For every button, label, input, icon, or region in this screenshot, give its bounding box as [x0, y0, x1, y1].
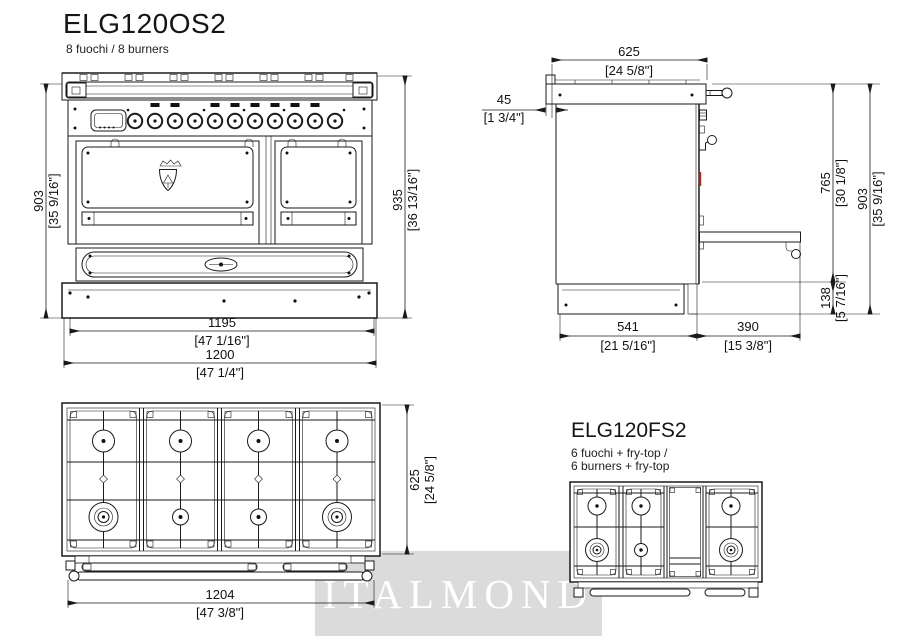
side-towel-rail [700, 232, 801, 259]
dim-width-body-inch: [47 1/16"] [194, 333, 249, 348]
dim-depth-front-mm: 390 [737, 319, 759, 334]
front-view-drawing: 903 [35 9/16"] 935 [36 13/16"] 1195 [47 … [31, 73, 420, 380]
dim-plinth-height-mm: 138 [818, 287, 833, 309]
oven-display [91, 110, 126, 131]
variant-front-trim [574, 582, 758, 597]
page-subtitle: 8 fuochi / 8 burners [66, 42, 169, 56]
dim-back-offset-mm: 45 [497, 92, 511, 107]
side-knob [706, 88, 732, 98]
dim-height-to-plinth-mm: 765 [818, 172, 833, 194]
dim-depth-top-mm: 625 [618, 44, 640, 59]
variant-title: ELG120FS2 [571, 419, 687, 443]
dim-width-body-mm: 1195 [208, 315, 236, 330]
top-view-front-trim [66, 556, 374, 581]
dim-width-total-inch: [47 1/4"] [196, 365, 244, 380]
top-view-drawing: 625 [24 5/8"] 1204 [47 3/8"] [62, 403, 437, 620]
variant-top-view-drawing [570, 482, 762, 597]
page-title: ELG120OS2 [63, 8, 226, 40]
dim-top-depth-mm: 625 [407, 469, 422, 491]
side-door-handle [700, 136, 717, 151]
storage-drawer [76, 248, 363, 281]
dim-top-depth-inch: [24 5/8"] [422, 456, 437, 504]
dim-depth-body-inch: [21 5/16"] [600, 338, 655, 353]
dim-top-width-mm: 1204 [206, 587, 235, 602]
dim-height-deck-mm: 903 [31, 190, 46, 212]
dim-plinth-height-inch: [5 7/16"] [833, 274, 848, 322]
dim-side-height-total-inch: [35 9/16"] [870, 171, 885, 226]
dim-height-deck-inch: [35 9/16"] [46, 173, 61, 228]
dim-depth-front-inch: [15 3/8"] [724, 338, 772, 353]
variant-subtitle: 6 fuochi + fry-top / 6 burners + fry-top [571, 447, 669, 473]
dim-height-total-inch: [36 13/16"] [405, 169, 420, 231]
control-knobs [127, 103, 346, 128]
technical-drawing-page: ELG120OS2 8 fuochi / 8 burners ELG120FS2… [0, 0, 917, 636]
dim-back-offset-inch: [1 3/4"] [484, 110, 525, 125]
side-view-drawing: 625 [24 5/8"] 45 [1 3/4"] 765 [30 1/8"] … [482, 44, 885, 353]
dim-top-width-inch: [47 3/8"] [196, 605, 244, 620]
dim-depth-body-mm: 541 [617, 319, 639, 334]
variant-subtitle-line2: 6 burners + fry-top [571, 460, 669, 473]
dim-depth-top-inch: [24 5/8"] [605, 63, 653, 78]
drawing-canvas: 903 [35 9/16"] 935 [36 13/16"] 1195 [47 … [0, 0, 917, 636]
dim-height-to-plinth-inch: [30 1/8"] [833, 159, 848, 207]
fry-top-plate [670, 488, 701, 577]
dim-width-total-mm: 1200 [206, 347, 235, 362]
dim-height-total-mm: 935 [390, 189, 405, 211]
dim-side-height-total-mm: 903 [855, 188, 870, 210]
